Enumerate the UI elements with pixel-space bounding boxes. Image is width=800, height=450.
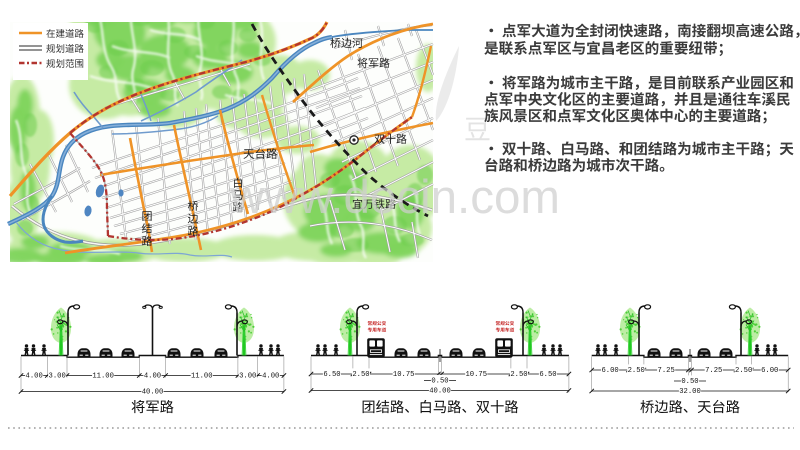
svg-text:4.00: 4.00 [144, 373, 161, 381]
svg-text:6.00: 6.00 [761, 367, 778, 375]
svg-text:6.50: 6.50 [539, 371, 556, 379]
svg-text:40.00: 40.00 [142, 389, 164, 397]
svg-text:11.00: 11.00 [191, 373, 213, 381]
svg-text:6.00: 6.00 [601, 367, 618, 375]
svg-text:10.75: 10.75 [393, 371, 415, 379]
svg-text:0.50: 0.50 [681, 378, 698, 386]
svg-text:2.50: 2.50 [735, 367, 752, 375]
svg-text:11.00: 11.00 [92, 373, 114, 381]
svg-text:6.50: 6.50 [323, 371, 340, 379]
svg-text:www.docin.com: www.docin.com [229, 171, 560, 224]
svg-text:10.75: 10.75 [465, 371, 487, 379]
svg-text:4.00: 4.00 [262, 373, 279, 381]
svg-text:4.00: 4.00 [26, 373, 43, 381]
svg-text:7.25: 7.25 [705, 367, 722, 375]
svg-text:0.50: 0.50 [431, 378, 448, 386]
svg-text:3.00: 3.00 [49, 373, 66, 381]
svg-text:3.00: 3.00 [239, 373, 256, 381]
svg-text:2.50: 2.50 [352, 371, 369, 379]
svg-text:40.00: 40.00 [429, 388, 451, 396]
svg-text:32.00: 32.00 [679, 388, 701, 396]
svg-text:2.50: 2.50 [510, 371, 527, 379]
svg-text:7.25: 7.25 [658, 367, 675, 375]
svg-text:2.50: 2.50 [628, 367, 645, 375]
